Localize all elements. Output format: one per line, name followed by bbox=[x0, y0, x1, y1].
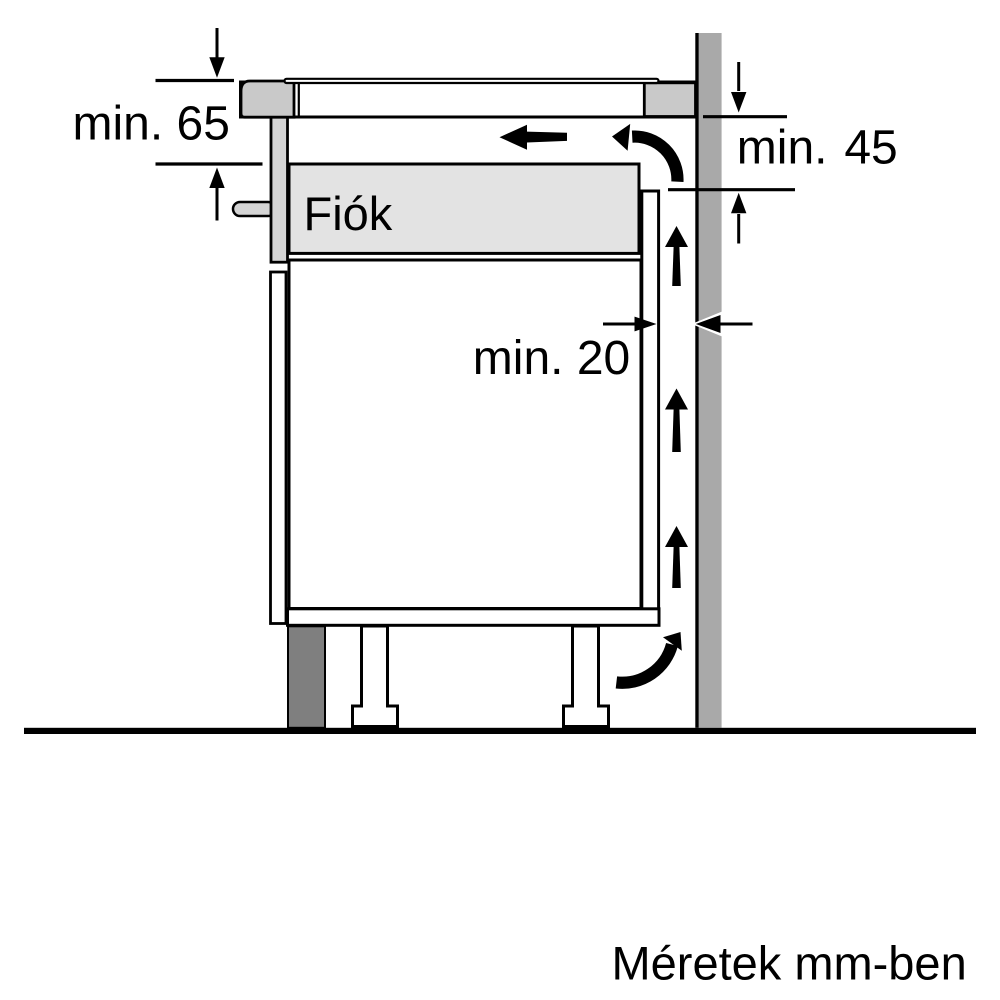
svg-text:Fiók: Fiók bbox=[304, 187, 393, 240]
svg-text:min. 65: min. 65 bbox=[73, 98, 230, 151]
svg-text:min. 45: min. 45 bbox=[737, 122, 898, 175]
svg-text:Méretek mm-ben: Méretek mm-ben bbox=[612, 937, 967, 990]
svg-text:min. 20: min. 20 bbox=[473, 332, 630, 385]
